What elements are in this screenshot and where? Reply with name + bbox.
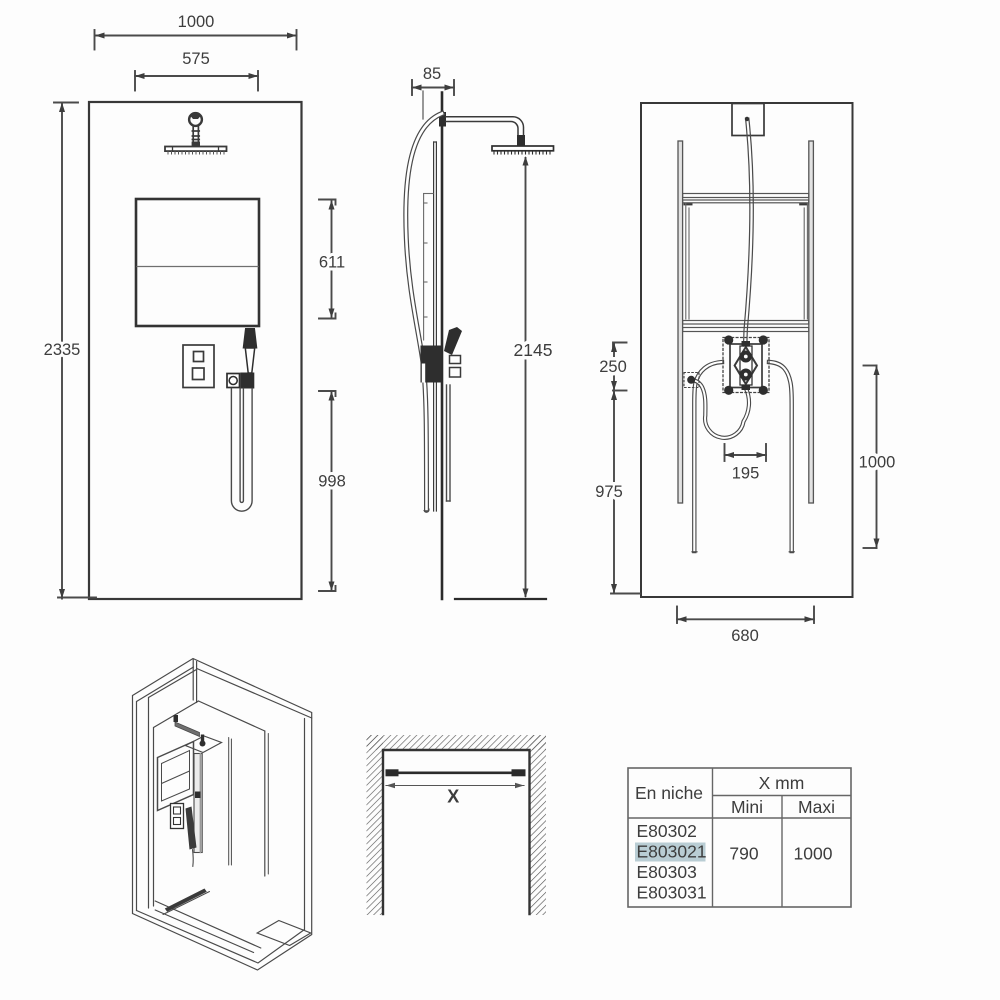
svg-text:1000: 1000 — [794, 844, 833, 864]
svg-text:250: 250 — [599, 358, 627, 376]
svg-text:575: 575 — [182, 50, 210, 68]
svg-text:X: X — [447, 787, 459, 807]
svg-text:195: 195 — [732, 465, 760, 483]
svg-text:E803021: E803021 — [637, 842, 707, 862]
svg-text:680: 680 — [731, 627, 759, 645]
svg-text:Maxi: Maxi — [798, 797, 835, 817]
svg-text:998: 998 — [318, 473, 346, 491]
svg-text:1000: 1000 — [859, 454, 896, 472]
svg-text:E80303: E80303 — [637, 862, 697, 882]
svg-text:85: 85 — [423, 65, 441, 83]
svg-text:975: 975 — [595, 483, 623, 501]
svg-text:611: 611 — [319, 254, 345, 272]
svg-text:1000: 1000 — [178, 13, 215, 31]
svg-text:E803031: E803031 — [637, 883, 707, 903]
svg-text:En niche: En niche — [635, 783, 703, 803]
svg-text:Mini: Mini — [731, 797, 763, 817]
svg-text:X mm: X mm — [759, 773, 805, 793]
svg-text:790: 790 — [729, 844, 758, 864]
svg-text:2335: 2335 — [44, 341, 81, 359]
svg-text:2145: 2145 — [514, 340, 553, 360]
svg-text:E80302: E80302 — [637, 821, 697, 841]
